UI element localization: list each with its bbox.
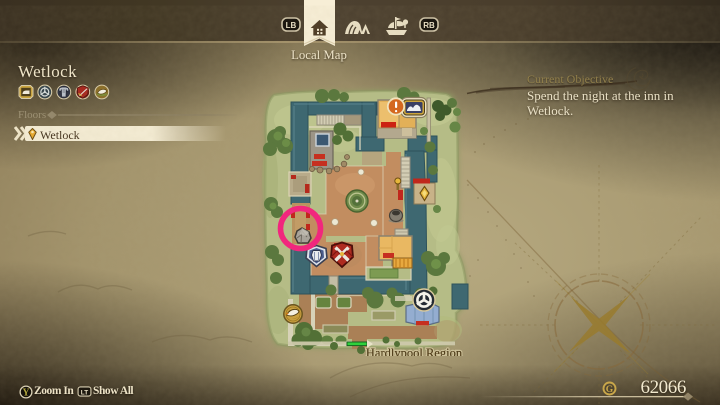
svg-text:Y: Y <box>22 387 30 398</box>
svg-text:LT: LT <box>81 389 88 396</box>
svg-text:Hardlypool Region: Hardlypool Region <box>366 346 463 356</box>
